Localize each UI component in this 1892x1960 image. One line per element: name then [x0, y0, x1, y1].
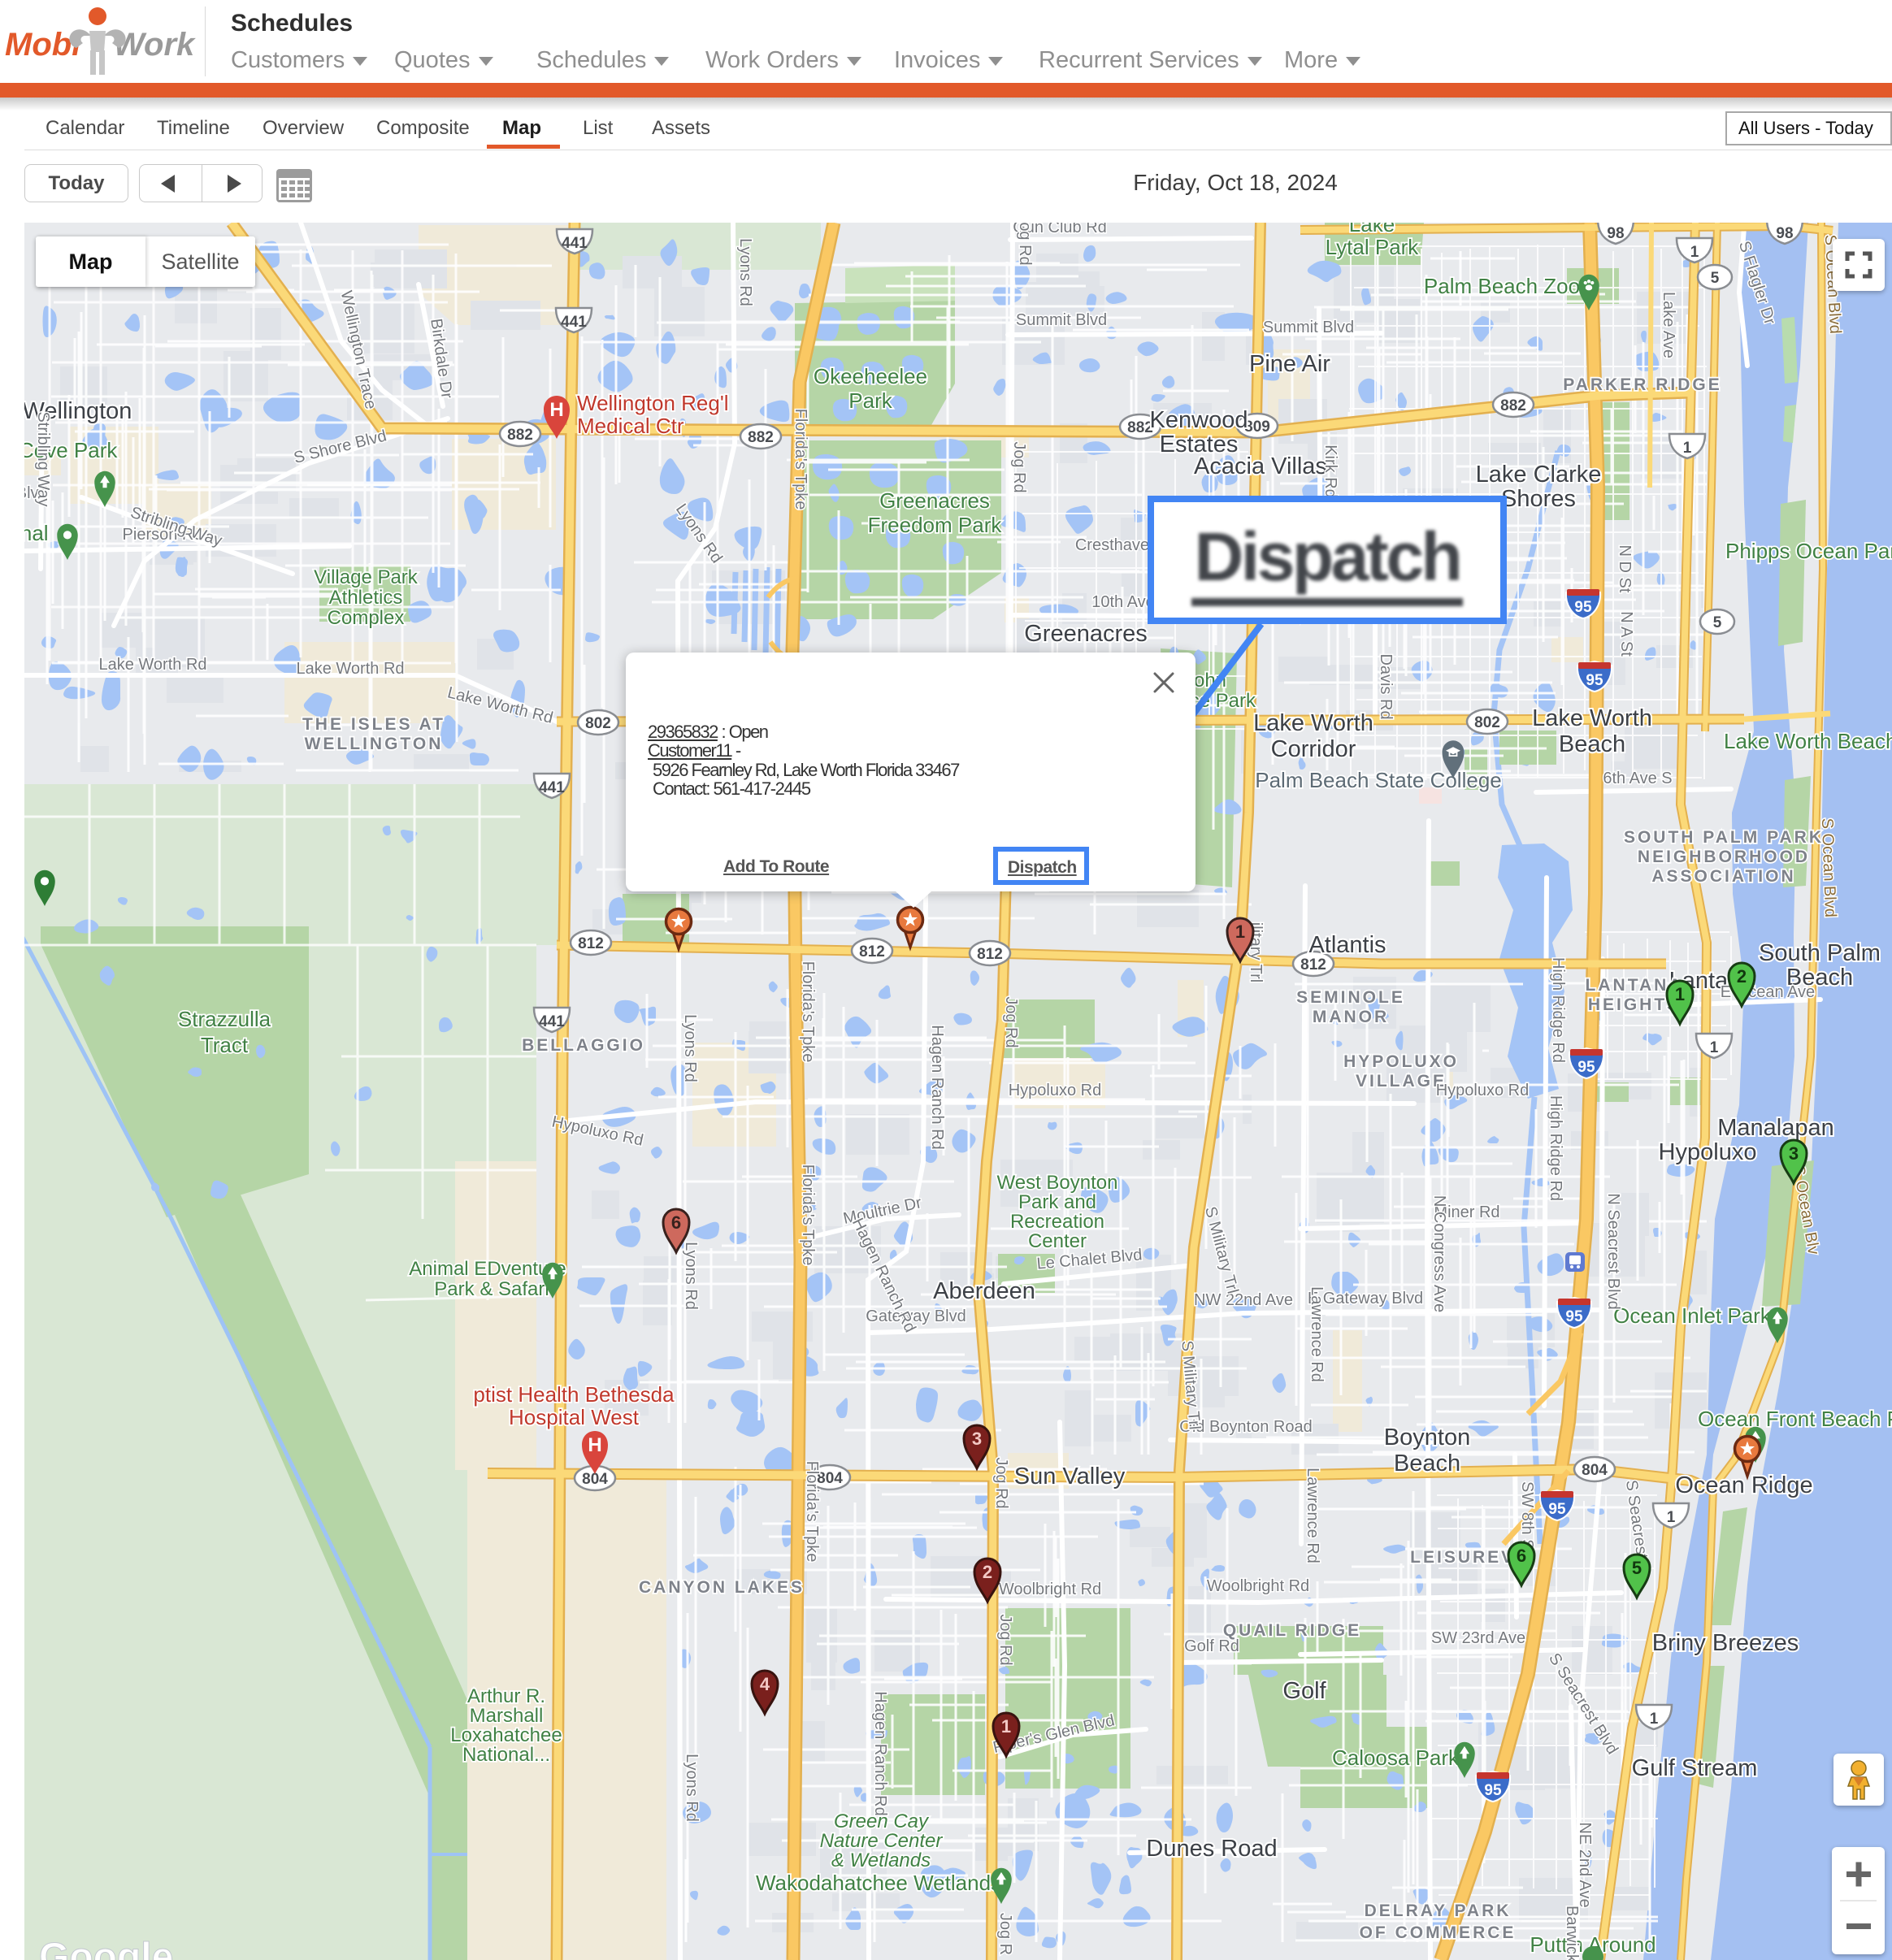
svg-text:Manalapan: Manalapan — [1717, 1115, 1834, 1141]
svg-text:THE ISLES AT: THE ISLES AT — [302, 715, 445, 734]
svg-text:Complex: Complex — [328, 607, 405, 629]
svg-text:Recreation: Recreation — [1010, 1211, 1104, 1233]
svg-text:Golf: Golf — [1282, 1678, 1326, 1704]
svg-text:Cresthaven: Cresthaven — [1075, 536, 1158, 554]
svg-text:N A St: N A St — [1617, 611, 1635, 657]
svg-text:Boynton: Boynton — [1384, 1424, 1470, 1450]
svg-text:Lake Clarke: Lake Clarke — [1476, 462, 1602, 488]
svg-text:H: H — [549, 399, 563, 421]
svg-text:Village Park: Village Park — [314, 566, 419, 588]
svg-text:3: 3 — [1789, 1143, 1799, 1164]
svg-text:Lyons Rd: Lyons Rd — [682, 1242, 700, 1310]
svg-text:812: 812 — [977, 946, 1003, 963]
svg-text:Hypoluxo Rd: Hypoluxo Rd — [1009, 1082, 1102, 1099]
svg-text:Gulf Stream: Gulf Stream — [1632, 1755, 1758, 1781]
svg-text:2: 2 — [1737, 966, 1747, 987]
svg-text:809: 809 — [1244, 418, 1270, 436]
svg-text:1: 1 — [1667, 1509, 1676, 1526]
svg-text:Lake Worth Beach P: Lake Worth Beach P — [1724, 729, 1892, 753]
svg-text:NW 22nd Ave: NW 22nd Ave — [1194, 1291, 1293, 1309]
svg-text:441: 441 — [561, 314, 587, 331]
svg-text:441: 441 — [539, 1013, 565, 1030]
svg-text:DELRAY PARK: DELRAY PARK — [1365, 1901, 1512, 1920]
svg-text:OF COMMERCE: OF COMMERCE — [1360, 1923, 1517, 1942]
svg-text:Tract: Tract — [201, 1033, 249, 1057]
svg-text:6: 6 — [1517, 1546, 1526, 1566]
svg-text:1: 1 — [1710, 1039, 1719, 1056]
svg-text:95: 95 — [1577, 1059, 1595, 1076]
svg-text:N Seacrest Blvd: N Seacrest Blvd — [1604, 1193, 1622, 1309]
svg-text:Briny Breezes: Briny Breezes — [1652, 1630, 1799, 1656]
svg-text:NEIGHBORHOOD: NEIGHBORHOOD — [1638, 848, 1810, 866]
svg-text:Hagen Ranch Rd: Hagen Ranch Rd — [928, 1025, 946, 1149]
svg-text:3: 3 — [972, 1429, 982, 1449]
svg-text:onal: onal — [24, 521, 49, 545]
svg-text:Loxahatchee: Loxahatchee — [450, 1724, 562, 1746]
svg-text:Summit Blvd: Summit Blvd — [1016, 311, 1107, 329]
svg-text:Florida's Tpke: Florida's Tpke — [799, 961, 817, 1063]
svg-text:BELLAGGIO: BELLAGGIO — [522, 1036, 645, 1055]
svg-text:Davis Rd: Davis Rd — [1377, 653, 1395, 719]
svg-text:Lyons Rd: Lyons Rd — [736, 238, 754, 306]
svg-text:Barwick R: Barwick R — [1563, 1906, 1581, 1960]
svg-text:4: 4 — [760, 1674, 770, 1694]
svg-text:Marshall: Marshall — [470, 1705, 544, 1727]
svg-text:95: 95 — [1574, 599, 1592, 616]
svg-text:Strazzulla: Strazzulla — [178, 1007, 271, 1031]
svg-text:Google: Google — [39, 1936, 173, 1960]
svg-text:95: 95 — [1548, 1501, 1566, 1518]
svg-text:PARKER RIDGE: PARKER RIDGE — [1563, 375, 1721, 394]
svg-text:Okeeheelee: Okeeheelee — [814, 364, 927, 388]
svg-text:Hagen Ranch Rd: Hagen Ranch Rd — [871, 1691, 889, 1815]
svg-text:95: 95 — [1586, 672, 1603, 689]
svg-text:SOUTH PALM PARK: SOUTH PALM PARK — [1624, 828, 1824, 847]
svg-text:882: 882 — [1500, 397, 1526, 414]
svg-text:High Ridge Rd: High Ridge Rd — [1549, 957, 1567, 1063]
svg-text:98: 98 — [1607, 225, 1624, 242]
svg-text:Phipps Ocean Park: Phipps Ocean Park — [1725, 539, 1892, 563]
svg-text:882: 882 — [507, 427, 533, 444]
svg-text:N Congress Ave: N Congress Ave — [1430, 1195, 1448, 1312]
svg-text:Pine Air: Pine Air — [1249, 351, 1330, 377]
svg-text:Shores: Shores — [1501, 486, 1576, 512]
svg-text:Lyons Rd: Lyons Rd — [681, 1014, 699, 1082]
svg-text:Park & Safari: Park & Safari — [434, 1278, 549, 1300]
svg-text:Beach: Beach — [1394, 1450, 1460, 1477]
svg-text:og Rd: og Rd — [1016, 223, 1034, 266]
svg-text:Florida's Tpke: Florida's Tpke — [792, 409, 809, 510]
svg-text:Nature Center: Nature Center — [820, 1830, 944, 1852]
svg-text:Lake Worth: Lake Worth — [1532, 705, 1652, 731]
svg-text:Center: Center — [1028, 1230, 1087, 1252]
svg-text:Beach: Beach — [1559, 731, 1625, 757]
svg-text:ASSOCIATION: ASSOCIATION — [1651, 867, 1795, 886]
svg-text:HYPOLUXO: HYPOLUXO — [1343, 1052, 1459, 1071]
svg-text:SEMINOLE: SEMINOLE — [1296, 988, 1405, 1007]
svg-text:N D St: N D St — [1616, 545, 1634, 593]
svg-text:95: 95 — [1565, 1308, 1583, 1325]
svg-text:Ocean Front Beach P: Ocean Front Beach P — [1698, 1407, 1892, 1431]
svg-text:5: 5 — [1632, 1558, 1642, 1578]
svg-text:Caloosa Park: Caloosa Park — [1332, 1745, 1460, 1770]
svg-text:Stribling Way: Stribling Way — [34, 411, 52, 506]
svg-text:Medical Ctr: Medical Ctr — [577, 414, 684, 438]
svg-text:Kenwood: Kenwood — [1150, 407, 1248, 433]
svg-text:High Ridge Rd: High Ridge Rd — [1547, 1095, 1564, 1201]
svg-text:Arthur R.: Arthur R. — [467, 1685, 545, 1707]
svg-text:Lake Worth Rd: Lake Worth Rd — [296, 660, 404, 678]
svg-text:Sun Valley: Sun Valley — [1014, 1463, 1126, 1490]
svg-text:MANOR: MANOR — [1313, 1008, 1389, 1026]
svg-text:Golf Rd: Golf Rd — [1184, 1637, 1239, 1655]
svg-text:95: 95 — [1484, 1782, 1502, 1799]
svg-text:Lyons Rd: Lyons Rd — [683, 1754, 701, 1822]
svg-text:1: 1 — [1690, 244, 1699, 261]
svg-text:802: 802 — [585, 715, 611, 732]
svg-text:South Palm: South Palm — [1759, 940, 1881, 966]
svg-text:Lake Ave: Lake Ave — [1660, 292, 1677, 358]
svg-text:NE 2nd Ave: NE 2nd Ave — [1576, 1822, 1594, 1907]
svg-text:Hypoluxo Rd: Hypoluxo Rd — [1436, 1082, 1530, 1099]
svg-text:Work: Work — [114, 27, 196, 63]
svg-text:Jog Rd: Jog Rd — [992, 1457, 1010, 1508]
svg-text:West Boynton: West Boynton — [997, 1172, 1118, 1194]
svg-text:Palm Beach Zoo: Palm Beach Zoo — [1424, 274, 1580, 298]
svg-text:882: 882 — [748, 429, 774, 446]
svg-text:98: 98 — [1776, 225, 1793, 242]
svg-text:Athletics: Athletics — [329, 587, 403, 609]
svg-text:6th Ave S: 6th Ave S — [1603, 770, 1672, 787]
svg-text:Florida's Tpke: Florida's Tpke — [803, 1461, 821, 1563]
svg-text:Summit Blvd: Summit Blvd — [1263, 319, 1354, 336]
svg-text:812: 812 — [578, 935, 604, 952]
svg-text:Lawrence Rd: Lawrence Rd — [1308, 1286, 1326, 1382]
svg-text:Jog Rd: Jog Rd — [1010, 441, 1028, 492]
svg-text:Woolbright Rd: Woolbright Rd — [999, 1581, 1101, 1598]
svg-text:Mobi: Mobi — [5, 27, 81, 63]
svg-text:SW 23rd Ave: SW 23rd Ave — [1431, 1629, 1525, 1647]
svg-text:441: 441 — [539, 779, 565, 796]
svg-text:Jog Rd: Jog Rd — [996, 1614, 1014, 1665]
svg-text:Aberdeen: Aberdeen — [933, 1278, 1035, 1304]
svg-text:812: 812 — [859, 943, 885, 960]
svg-text:Lake Worth Rd: Lake Worth Rd — [98, 656, 206, 674]
svg-text:& Wetlands: & Wetlands — [831, 1849, 931, 1871]
svg-text:Jog R: Jog R — [996, 1913, 1014, 1955]
svg-text:Lytal Park: Lytal Park — [1326, 235, 1420, 259]
svg-text:ptist Health Bethesda: ptist Health Bethesda — [473, 1382, 675, 1407]
svg-text:5: 5 — [1711, 270, 1720, 287]
svg-text:Park: Park — [848, 388, 892, 413]
svg-text:Hospital West: Hospital West — [509, 1405, 640, 1429]
svg-text:Greenacres: Greenacres — [879, 488, 990, 513]
svg-text:Kirk Rd: Kirk Rd — [1321, 444, 1339, 498]
svg-text:H: H — [588, 1434, 601, 1456]
svg-text:1: 1 — [1650, 1711, 1659, 1728]
svg-text:1: 1 — [1235, 921, 1245, 942]
svg-text:Lawrence Rd: Lawrence Rd — [1304, 1468, 1321, 1563]
svg-text:Florida's Tpke: Florida's Tpke — [799, 1164, 817, 1266]
svg-text:Acacia Villas: Acacia Villas — [1194, 453, 1327, 479]
svg-text:Hypoluxo: Hypoluxo — [1659, 1139, 1757, 1165]
svg-text:Ocean Inlet Park: Ocean Inlet Park — [1613, 1303, 1772, 1328]
svg-text:Park and: Park and — [1018, 1191, 1096, 1213]
svg-text:CANYON LAKES: CANYON LAKES — [639, 1578, 805, 1597]
svg-text:Ocean Ridge: Ocean Ridge — [1675, 1472, 1812, 1498]
svg-text:6: 6 — [671, 1212, 681, 1233]
svg-text:2: 2 — [983, 1562, 992, 1582]
svg-text:QUAIL RIDGE: QUAIL RIDGE — [1223, 1621, 1361, 1640]
svg-text:1: 1 — [1683, 440, 1692, 457]
svg-text:441: 441 — [562, 235, 588, 252]
svg-text:1: 1 — [1675, 984, 1685, 1004]
svg-text:802: 802 — [1474, 714, 1500, 731]
svg-text:1: 1 — [1001, 1716, 1011, 1737]
svg-text:Wakodahatchee Wetlands: Wakodahatchee Wetlands — [756, 1871, 1001, 1895]
svg-text:Wellington Reg'l: Wellington Reg'l — [577, 391, 729, 415]
svg-text:812: 812 — [1300, 956, 1326, 973]
svg-text:Dunes Road: Dunes Road — [1146, 1836, 1277, 1862]
svg-text:Atlantis: Atlantis — [1308, 932, 1386, 958]
svg-text:5: 5 — [1713, 614, 1722, 631]
svg-text:804: 804 — [1582, 1462, 1608, 1479]
svg-text:Woolbright Rd: Woolbright Rd — [1207, 1577, 1309, 1595]
svg-text:S Ocean Blvd: S Ocean Blvd — [1818, 817, 1839, 917]
svg-text:WELLINGTON: WELLINGTON — [305, 735, 444, 753]
svg-text:National...: National... — [462, 1744, 550, 1766]
svg-text:Jog Rd: Jog Rd — [1002, 996, 1020, 1047]
svg-text:Freedom Park: Freedom Park — [868, 513, 1003, 537]
svg-text:VILLAGE: VILLAGE — [1356, 1072, 1447, 1091]
